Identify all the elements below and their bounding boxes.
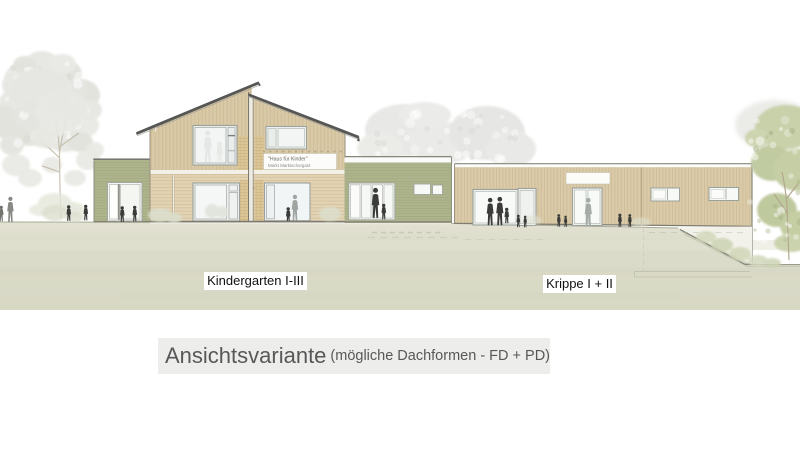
- svg-text:Markt Marktschorgast: Markt Marktschorgast: [268, 163, 311, 168]
- svg-text:"Haus für Kinder": "Haus für Kinder": [268, 157, 308, 163]
